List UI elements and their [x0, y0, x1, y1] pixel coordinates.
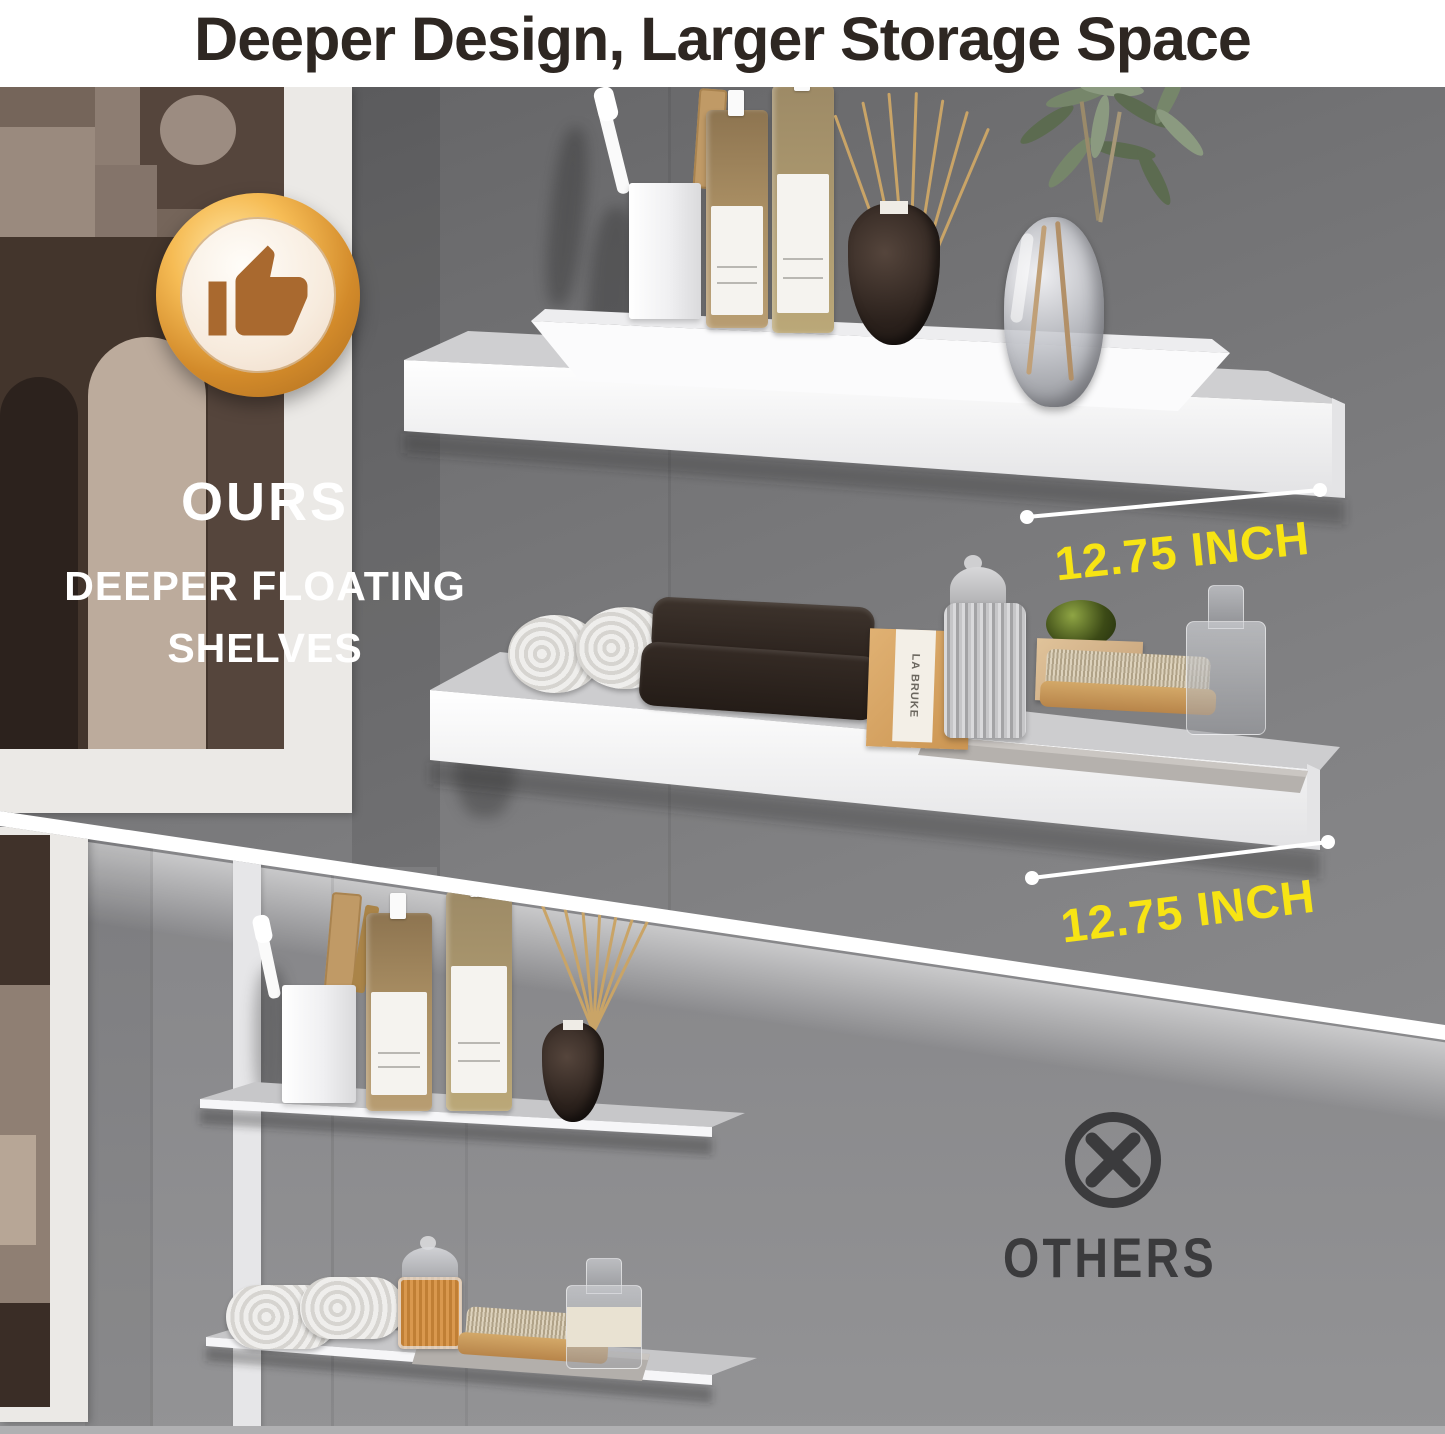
comparison-collage: 12.75 INCH 12.75 INCH — [0, 87, 1445, 1434]
cosmetic-bottle — [772, 85, 834, 333]
shelf2-end-face — [1307, 764, 1320, 850]
bottle-pump — [728, 90, 744, 116]
product-infographic: Deeper Design, Larger Storage Space — [0, 0, 1445, 1434]
bottle-label — [451, 966, 506, 1094]
shelf2-depth-label: 12.75 INCH — [1058, 869, 1318, 953]
glass-bottle — [566, 1285, 642, 1369]
header-band: Deeper Design, Larger Storage Space — [0, 0, 1445, 87]
badge-inner-disc — [180, 217, 336, 373]
cosmetic-bottle — [446, 891, 512, 1111]
thumbs-up-badge — [156, 193, 360, 397]
page-title: Deeper Design, Larger Storage Space — [0, 4, 1445, 74]
bottle-pump — [390, 893, 406, 919]
floor-strip — [0, 1426, 1445, 1434]
measure-dot — [1313, 483, 1327, 497]
toothbrush-cup — [629, 183, 701, 319]
bottle-label — [711, 206, 763, 315]
diffuser-label — [880, 201, 908, 214]
ours-subheading: DEEPER FLOATING SHELVES — [25, 555, 505, 679]
bottle-label — [371, 992, 426, 1095]
ribbed-glass-jar — [944, 603, 1026, 738]
x-circle-icon — [1070, 1117, 1156, 1203]
glass-bottle — [1186, 621, 1266, 735]
thumbs-up-icon — [204, 241, 312, 349]
soap-box-label: LA BRUKE — [892, 629, 936, 742]
shelf1-end-face — [1332, 398, 1345, 498]
measure-dot — [1020, 510, 1034, 524]
bottle-label — [777, 174, 829, 313]
cotton-swab-jar — [398, 1277, 462, 1349]
measure-dot — [1321, 835, 1335, 849]
cosmetic-bottle — [706, 110, 768, 328]
glass-vase — [1004, 217, 1104, 407]
rolled-towel — [300, 1277, 404, 1339]
measure-dot — [1025, 871, 1039, 885]
cosmetic-bottle — [366, 913, 432, 1111]
shelf1-depth-label: 12.75 INCH — [1052, 511, 1312, 590]
bottle-label — [567, 1307, 641, 1346]
diffuser-label — [563, 1020, 583, 1030]
toothbrush-cup — [282, 985, 356, 1103]
others-heading: OTHERS — [1003, 1226, 1217, 1289]
ours-heading: OURS — [40, 471, 490, 533]
